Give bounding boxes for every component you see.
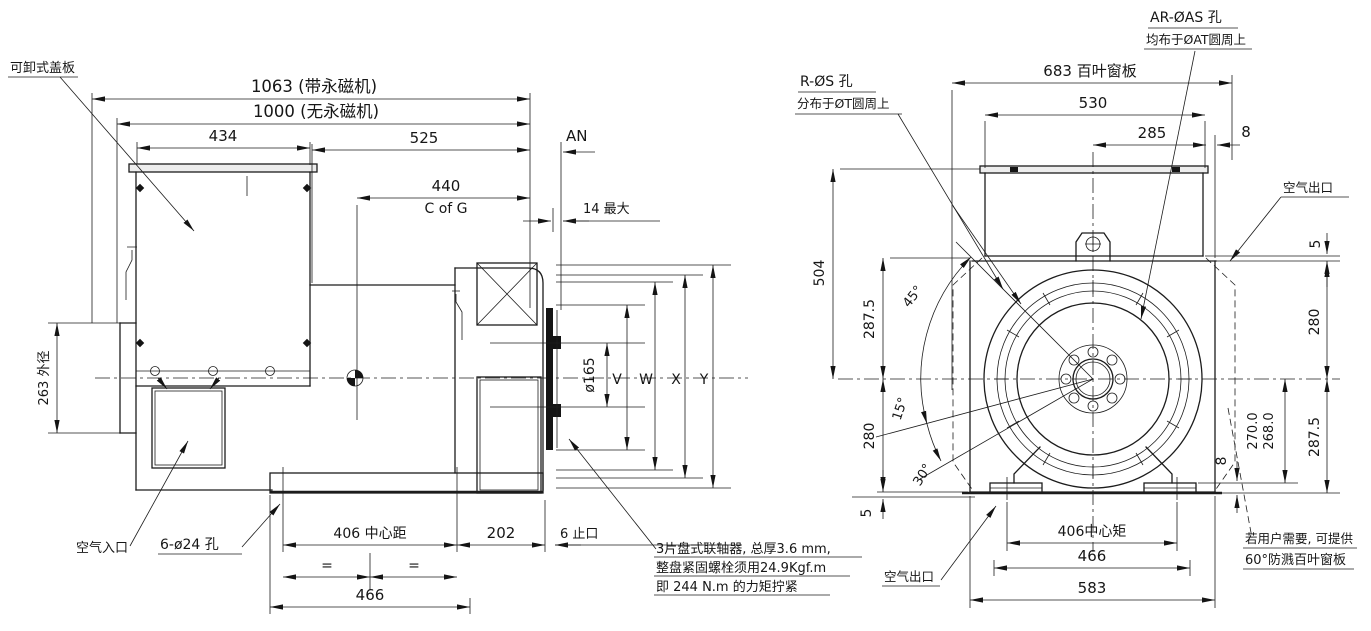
spigot-label: 6 止口 bbox=[560, 527, 598, 542]
coupling-disc bbox=[546, 308, 553, 450]
front-view-dimensions bbox=[795, 28, 1357, 608]
dim-504: 504 bbox=[812, 260, 828, 287]
r-holes-label-line1: R-ØS 孔 bbox=[800, 74, 853, 90]
pipe-fitting-right bbox=[452, 291, 462, 340]
dim-1000: 1000 (无永磁机) bbox=[253, 102, 379, 121]
dim-466-front: 466 bbox=[1078, 547, 1107, 565]
air-inlet-leader bbox=[130, 441, 188, 546]
dim-440: 440 bbox=[432, 177, 461, 195]
equal-mark-right: = bbox=[408, 558, 420, 574]
dim-8-right: 8 bbox=[1214, 457, 1230, 466]
air-inlet-label: 空气入口 bbox=[76, 540, 128, 556]
ar-holes-leader bbox=[1141, 51, 1195, 319]
louver-note-line2: 60°防溅百叶窗板 bbox=[1245, 552, 1346, 568]
dim-8-top: 8 bbox=[1241, 123, 1251, 141]
dim-525: 525 bbox=[410, 129, 439, 147]
dim-dia165: ø165 bbox=[582, 357, 598, 392]
dim-530: 530 bbox=[1079, 94, 1108, 112]
dim-683-louver: 683 百叶窗板 bbox=[1043, 62, 1136, 80]
angle-30: 30° bbox=[911, 461, 936, 488]
dim-X: X bbox=[671, 372, 681, 388]
dim-287-5-left: 287.5 bbox=[862, 299, 878, 339]
air-outlet-bottom-leader bbox=[941, 506, 996, 580]
center-of-gravity-symbol bbox=[347, 370, 363, 386]
angle-reference-lines bbox=[876, 242, 1093, 479]
dim-14-max: 14 最大 bbox=[583, 202, 630, 217]
dim-1063: 1063 (带永磁机) bbox=[251, 77, 377, 96]
side-view-labels: 可卸式盖板 1063 (带永磁机) 1000 (无永磁机) 434 525 AN… bbox=[10, 60, 831, 604]
holes-leader bbox=[242, 504, 280, 547]
side-view-geometry bbox=[95, 142, 748, 500]
dim-5-left: 5 bbox=[859, 509, 875, 518]
r-holes-label-line2: 分布于ØT圆周上 bbox=[797, 96, 889, 111]
dim-263-od: 263 外径 bbox=[37, 351, 52, 406]
generator-outline-drawing: 可卸式盖板 1063 (带永磁机) 1000 (无永磁机) 434 525 AN… bbox=[0, 0, 1371, 631]
dim-466: 466 bbox=[356, 586, 385, 604]
dim-Y: Y bbox=[699, 372, 709, 388]
holes-6-d24-label: 6-ø24 孔 bbox=[160, 537, 219, 553]
air-outlet-bottom-label: 空气出口 bbox=[884, 569, 934, 584]
dim-406-centers-front: 406中心矩 bbox=[1058, 524, 1127, 540]
louver-note-line1: 若用户需要, 可提供 bbox=[1245, 531, 1353, 546]
coupling-note-line2: 整盘紧固螺栓须用24.9Kgf.m bbox=[656, 560, 826, 576]
coupling-note-line1: 3片盘式联轴器, 总厚3.6 mm, bbox=[656, 541, 831, 557]
air-outlet-top-label: 空气出口 bbox=[1283, 180, 1333, 195]
ar-holes-label-line2: 均布于ØAT圆周上 bbox=[1146, 32, 1246, 47]
dim-406-centers: 406 中心距 bbox=[333, 526, 406, 542]
dim-280-left: 280 bbox=[862, 423, 878, 450]
equal-mark-left: = bbox=[321, 558, 333, 574]
dim-287-5-right: 287.5 bbox=[1307, 417, 1323, 457]
dim-V: V bbox=[612, 372, 622, 388]
dim-285: 285 bbox=[1138, 124, 1167, 142]
drive-end-grille bbox=[477, 377, 541, 493]
r-holes-leader1 bbox=[898, 114, 1003, 289]
optional-louver-outline-left bbox=[953, 258, 982, 492]
cover-bolt-marks bbox=[136, 184, 311, 347]
dim-5-top: 5 bbox=[1308, 240, 1324, 249]
dim-202: 202 bbox=[487, 524, 516, 542]
angle-45: 45° bbox=[900, 283, 926, 310]
dim-c-of-g: C of G bbox=[424, 201, 467, 217]
coupling-note-line3: 即 244 N.m 的力矩拧紧 bbox=[656, 579, 798, 595]
front-view-labels: AR-ØAS 孔 均布于ØAT圆周上 R-ØS 孔 分布于ØT圆周上 683 百… bbox=[797, 10, 1353, 597]
ar-holes-label-line1: AR-ØAS 孔 bbox=[1150, 10, 1222, 26]
dim-270-0: 270.0 bbox=[1246, 412, 1261, 449]
dim-268-0: 268.0 bbox=[1262, 412, 1277, 449]
cover-leader bbox=[60, 77, 194, 231]
angle-15: 15° bbox=[890, 396, 911, 423]
r-holes-leader2 bbox=[953, 206, 1021, 304]
dim-434: 434 bbox=[209, 127, 238, 145]
label-underlines-front bbox=[795, 28, 1357, 586]
dim-W: W bbox=[639, 372, 653, 388]
dim-280-right: 280 bbox=[1307, 309, 1323, 336]
air-outlet-top-leader bbox=[1230, 197, 1281, 261]
air-inlet-grille bbox=[152, 388, 225, 468]
dim-AN: AN bbox=[566, 127, 587, 145]
dim-583: 583 bbox=[1078, 579, 1107, 597]
removable-cover-label: 可卸式盖板 bbox=[10, 60, 75, 76]
cad-drawing-sheet: 可卸式盖板 1063 (带永磁机) 1000 (无永磁机) 434 525 AN… bbox=[0, 0, 1371, 631]
